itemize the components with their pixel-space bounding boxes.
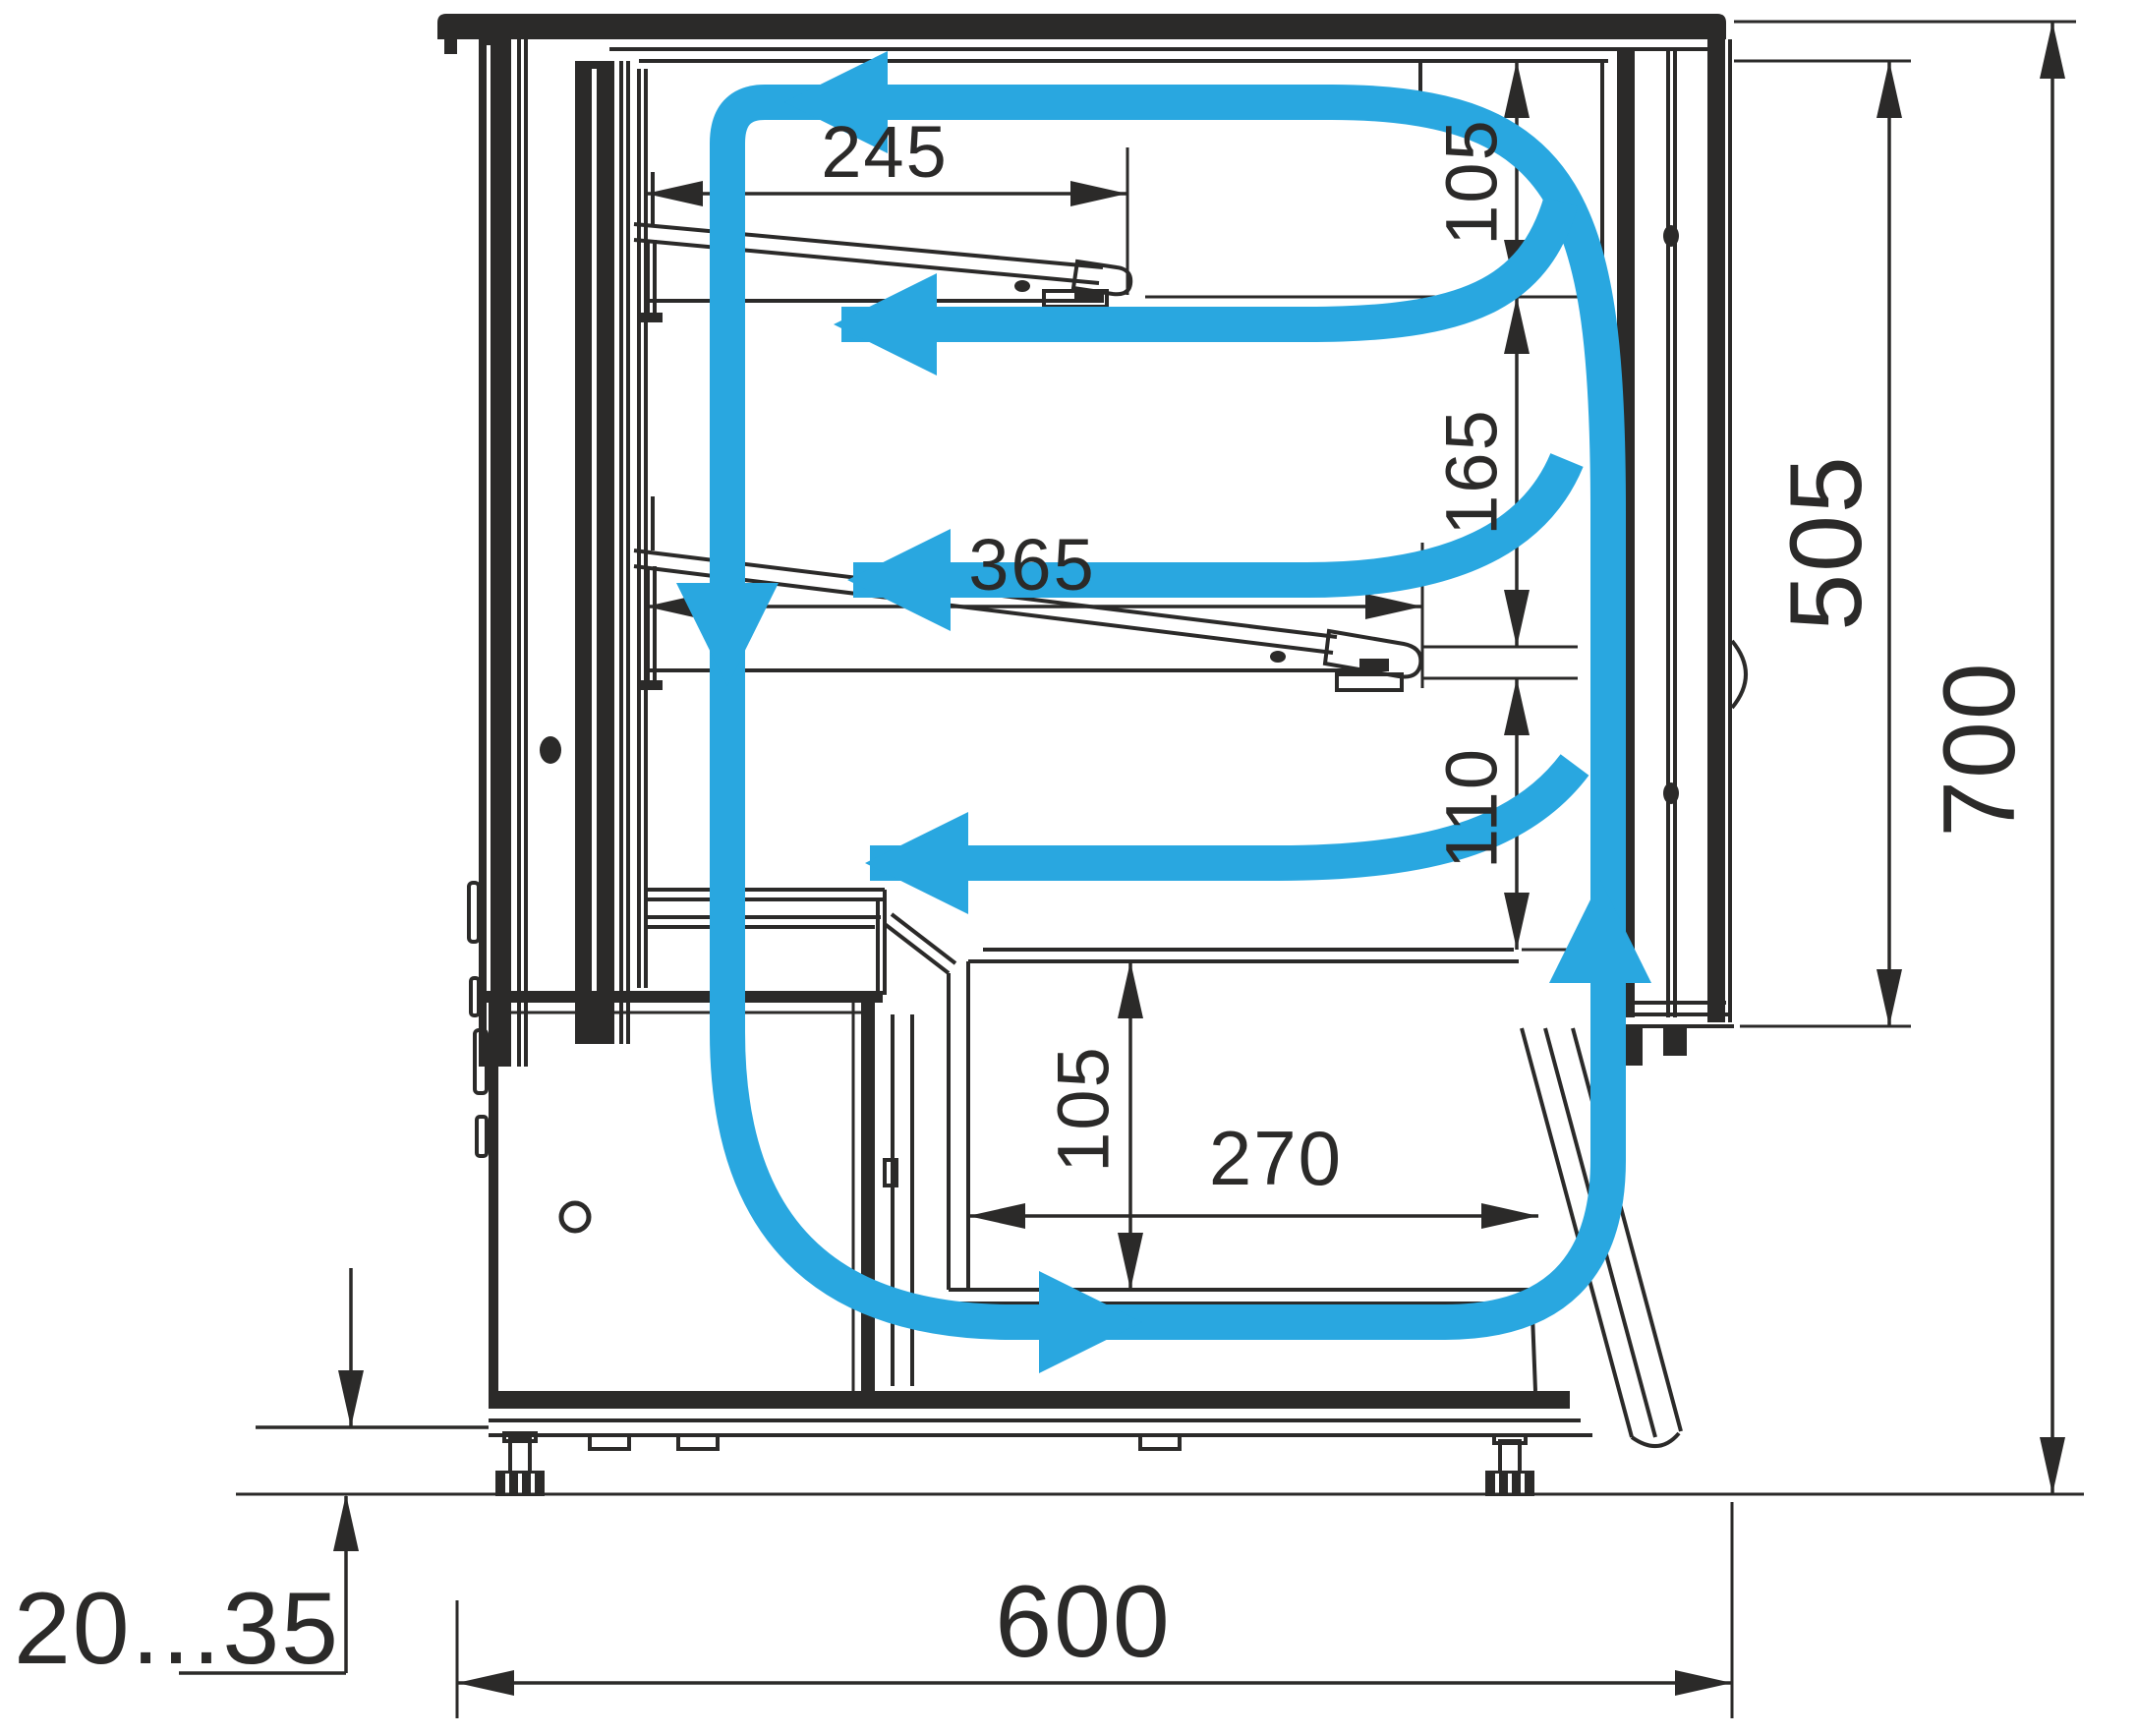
hinge-tab xyxy=(469,883,479,942)
arrow-left-upper-icon xyxy=(834,273,937,376)
machine-compartment xyxy=(475,991,883,1406)
label-opening-height: 505 xyxy=(1769,454,1883,631)
label-leg-adjustment: 20...35 xyxy=(14,1572,340,1686)
arrow-up-icon xyxy=(1549,880,1651,983)
deck-step xyxy=(646,890,955,995)
vent-hole xyxy=(561,1203,589,1231)
label-lower-shelf-depth: 365 xyxy=(968,524,1095,606)
label-upper-shelf-depth: 245 xyxy=(821,111,948,193)
glass-screw-dot xyxy=(1663,225,1679,247)
label-well-length: 270 xyxy=(1209,1115,1343,1201)
label-deck-clearance: 110 xyxy=(1431,747,1513,869)
label-overall-depth: 600 xyxy=(995,1565,1172,1679)
hinge-tab xyxy=(471,978,479,1015)
glass-screw-dot xyxy=(1663,782,1679,804)
handle-bump xyxy=(1732,641,1746,708)
drawing-page: 245 365 105 165 110 105 270 505 700 600 … xyxy=(0,0,2137,1736)
label-top-clearance: 105 xyxy=(1431,118,1513,245)
label-shelf-clearance: 165 xyxy=(1431,408,1513,535)
airflow xyxy=(676,51,1651,1373)
right-foot xyxy=(1485,1435,1534,1496)
display-case-cross-section: 245 365 105 165 110 105 270 505 700 600 … xyxy=(0,0,2137,1736)
left-foot xyxy=(495,1433,545,1496)
arrow-right-bottom-icon xyxy=(1039,1271,1142,1373)
wall-screw-dot xyxy=(540,736,561,764)
back-wall xyxy=(469,39,646,1067)
arrow-left-middle-icon xyxy=(847,529,951,631)
base-frame xyxy=(489,1391,1592,1449)
label-well-depth: 105 xyxy=(1043,1045,1125,1172)
label-overall-height: 700 xyxy=(1923,661,2037,838)
